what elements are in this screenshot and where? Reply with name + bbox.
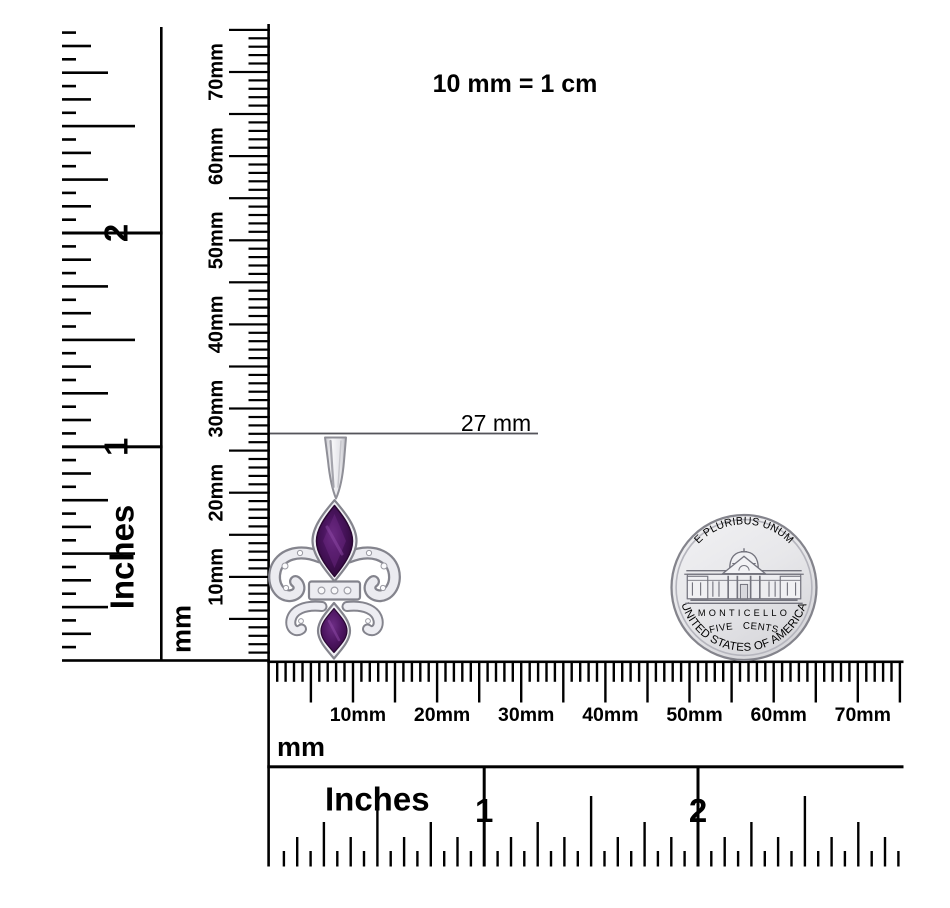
svg-text:50mm: 50mm: [666, 704, 722, 726]
svg-text:10mm: 10mm: [330, 704, 386, 726]
svg-text:20mm: 20mm: [414, 704, 470, 726]
svg-text:2: 2: [689, 792, 707, 829]
svg-text:10 mm = 1 cm: 10 mm = 1 cm: [433, 70, 598, 98]
svg-text:70mm: 70mm: [835, 704, 891, 726]
svg-text:40mm: 40mm: [206, 295, 228, 353]
svg-text:50mm: 50mm: [206, 211, 228, 269]
svg-text:70mm: 70mm: [206, 43, 228, 101]
svg-text:40mm: 40mm: [582, 704, 638, 726]
svg-text:Inches: Inches: [325, 781, 430, 818]
svg-text:mm: mm: [167, 605, 197, 653]
svg-text:20mm: 20mm: [206, 464, 228, 522]
svg-text:1: 1: [98, 438, 135, 456]
svg-text:MONTICELLO: MONTICELLO: [698, 608, 790, 618]
svg-text:Inches: Inches: [104, 505, 141, 610]
svg-text:30mm: 30mm: [206, 380, 228, 438]
svg-text:60mm: 60mm: [206, 127, 228, 185]
svg-text:mm: mm: [277, 732, 325, 762]
svg-text:27 mm: 27 mm: [461, 410, 531, 436]
svg-text:1: 1: [475, 792, 493, 829]
svg-text:10mm: 10mm: [206, 548, 228, 606]
svg-text:60mm: 60mm: [751, 704, 807, 726]
svg-text:2: 2: [98, 224, 135, 242]
svg-text:30mm: 30mm: [498, 704, 554, 726]
